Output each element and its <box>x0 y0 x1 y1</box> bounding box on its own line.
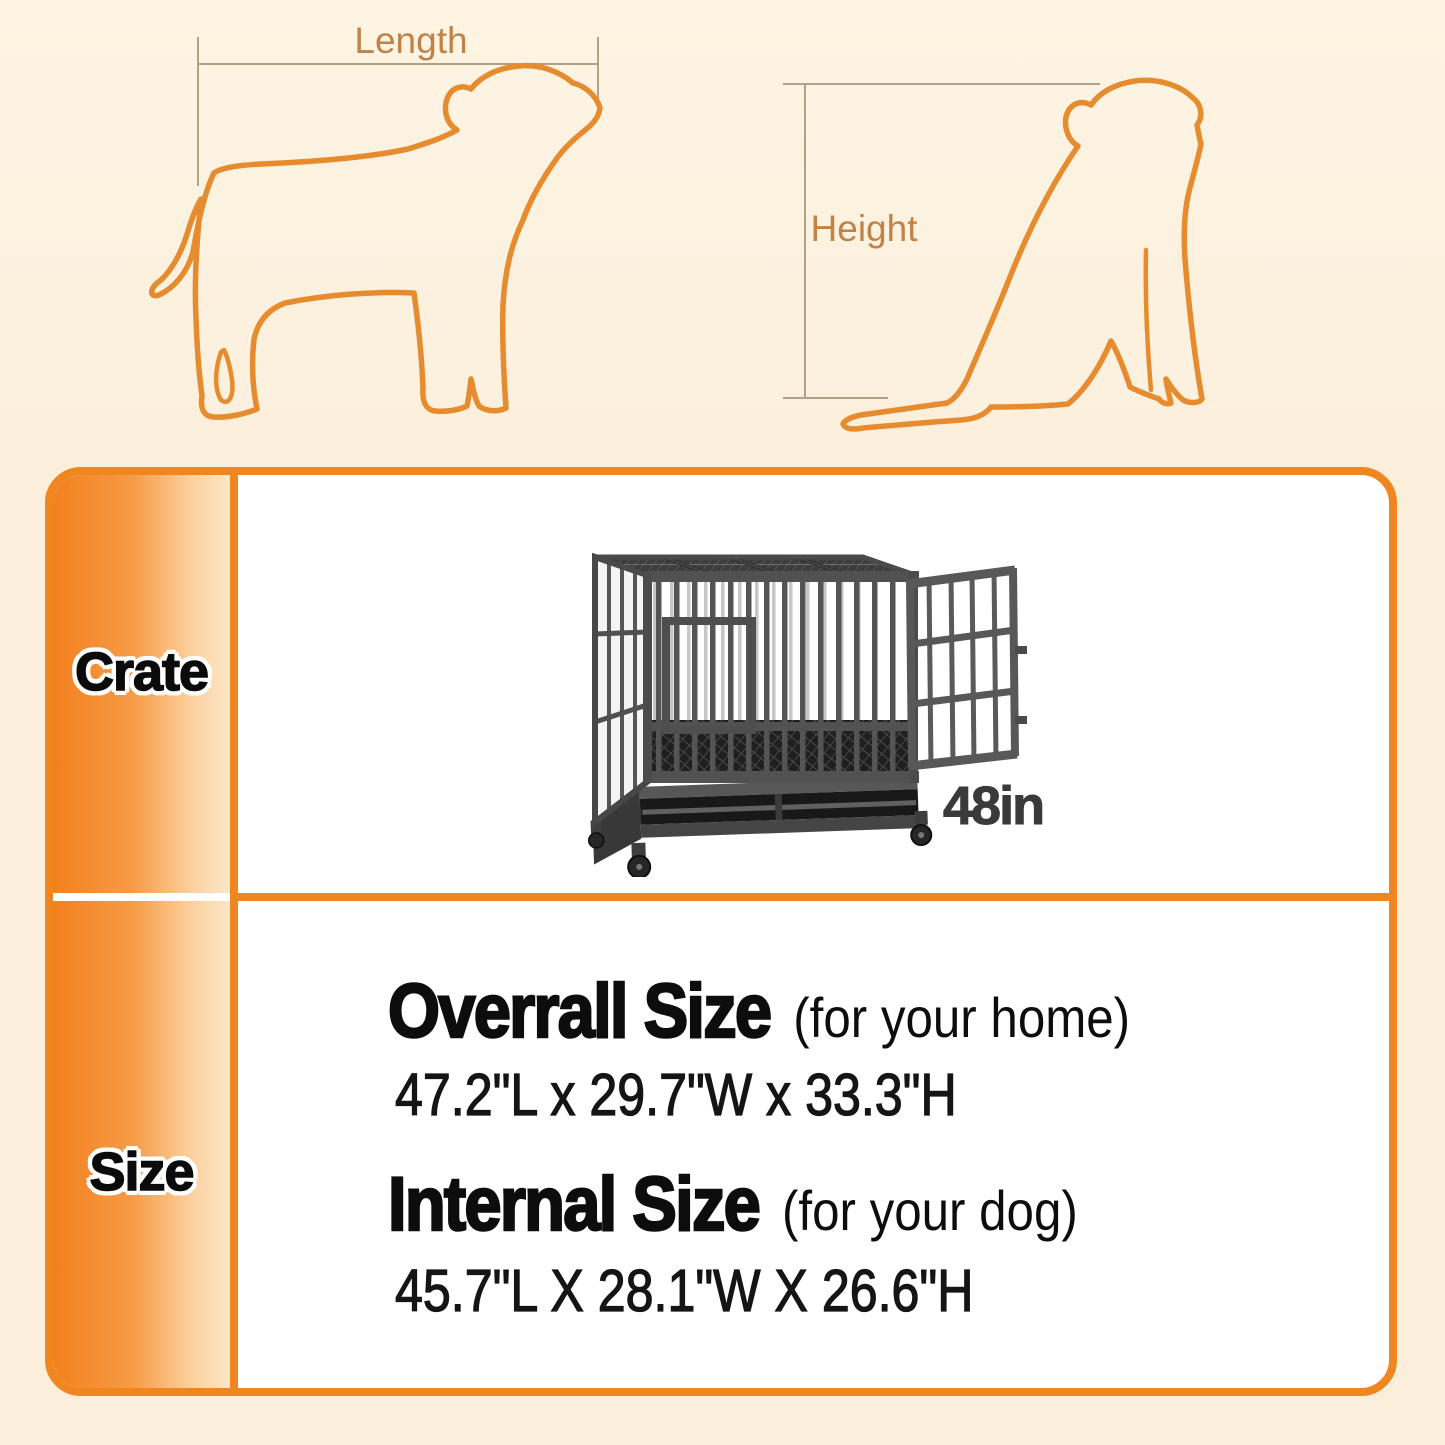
length-measure-diagram: Length <box>140 20 610 430</box>
overall-size-dimensions: 47.2"L x 29.7"W x 33.3"H <box>395 1061 957 1129</box>
height-measure-diagram: Height <box>760 40 1320 460</box>
internal-size-note: (for your dog) <box>782 1178 1078 1243</box>
row-divider-main <box>230 893 1389 901</box>
length-label: Length <box>354 20 467 61</box>
internal-size-dimensions: 45.7"L X 28.1"W X 26.6"H <box>395 1257 973 1325</box>
crate-front-face <box>643 571 919 783</box>
row-header-crate: Crate <box>75 641 208 703</box>
row-divider-left <box>53 893 230 901</box>
height-label: Height <box>811 208 919 249</box>
size-table-panel: Crate Size <box>45 467 1397 1396</box>
overall-size-heading: Overrall Size (for your home) <box>388 968 1130 1055</box>
crate-side-face <box>595 557 647 822</box>
column-divider <box>230 475 238 1388</box>
row-header-size-cell: Size <box>53 901 230 1388</box>
sitting-dog-outline-icon <box>843 80 1202 429</box>
internal-size-title: Internal Size <box>388 1161 759 1248</box>
crate-open-door <box>908 568 1027 768</box>
crate-length-badge: 48in <box>943 775 1043 837</box>
overall-size-title: Overrall Size <box>388 968 770 1055</box>
row-header-size: Size <box>89 1141 193 1203</box>
row-header-crate-cell: Crate <box>53 475 230 893</box>
crate-size-infographic: Length Height Crate Size <box>0 0 1445 1445</box>
overall-size-note: (for your home) <box>793 985 1130 1050</box>
internal-size-heading: Internal Size (for your dog) <box>388 1161 1078 1248</box>
standing-dog-outline-icon <box>152 66 600 417</box>
